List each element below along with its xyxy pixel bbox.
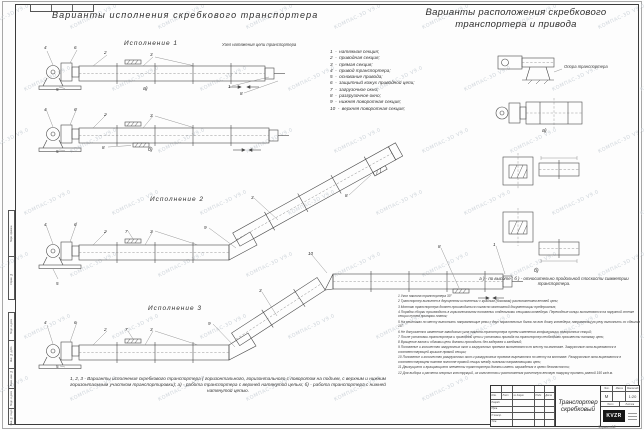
callout-5-exec3: 5: [56, 364, 59, 369]
callout-2-exec1a: 2: [104, 50, 107, 55]
callout-2-exec1b: 2: [104, 112, 107, 117]
notes-block: 1 Угол наклона транспортера 30° 2 Трансп…: [398, 294, 641, 376]
callout-3-exec1a: 3: [150, 52, 153, 57]
execution-1a-drawing: [33, 50, 328, 100]
fine-print-line: [628, 419, 637, 420]
callout-4-exec1a: 4: [44, 45, 47, 50]
placement-a-label: а): [542, 128, 547, 134]
note-line: 3 Монтаж транспортера должен производить…: [398, 305, 641, 310]
callout-7-exec2: 7: [125, 229, 128, 234]
callout-6-exec2: 6: [74, 222, 77, 227]
tb-header-podp: Подп.: [535, 393, 545, 400]
note-line: 9 Положение и количество загрузочных око…: [398, 345, 641, 354]
callout-4-exec3: 4: [44, 320, 47, 325]
callout-3i-exec3: 3: [259, 288, 262, 293]
company-logo: KVZR: [603, 410, 625, 422]
note-line: 12 Для выбора и расчета опорных конструк…: [398, 371, 641, 376]
callout-8-exec3: 8: [438, 244, 441, 249]
tb-role-utv: Утв.: [491, 420, 513, 427]
frame-sidebox-lower: Подп. и дата Инв. № дубл. Взам. инв. № П…: [8, 312, 15, 425]
frame-label: Взам. инв. №: [10, 370, 13, 386]
legend-item: 10-верхняя поворотная секция;: [330, 106, 415, 112]
callout-10-exec3: 10: [308, 251, 313, 256]
tb-header-data: Дата: [545, 393, 555, 400]
note-line: 2 Транспортер выполнен в двухцепном испо…: [398, 299, 641, 304]
callout-1-exec1a: 1: [228, 84, 231, 89]
frame-label: Справ. №: [10, 273, 13, 285]
note-line: 4 Порядок сборки производить в горизонта…: [398, 310, 641, 319]
callout-3-exec1b: 3: [150, 113, 153, 118]
legend: 1-натяжная секция; 2-приводная секция; 3…: [330, 49, 415, 112]
callout-2-exec2: 2: [104, 229, 107, 234]
frame-sidebox-upper: Перв. примен. Справ. №: [8, 210, 15, 300]
fine-print-line: [628, 413, 637, 414]
callout-3-exec2: 3: [150, 229, 153, 234]
callout-8-exec2: 8: [345, 193, 348, 198]
drawing-sheet: КОМПАС-3D V9.0КОМПАС-3D V9.0КОМПАС-3D V9…: [0, 0, 644, 430]
placement-b-drawing: [495, 152, 590, 270]
note-line: 6 Не допускается изменение заводского уг…: [398, 330, 641, 335]
support-view-drawing: [492, 50, 564, 88]
callout-9-exec3: 9: [208, 321, 211, 326]
fine-print-line: [628, 416, 637, 417]
callout-6-exec1b: 6: [74, 107, 77, 112]
tb-litera-value: М: [601, 392, 613, 402]
frame-label: Инв. № подл.: [10, 409, 13, 425]
tb-scale-value: 1:20: [626, 392, 639, 402]
tension-unit-note: Узел натяжения цепи транспортера: [222, 42, 296, 47]
frame-label: Инв. № дубл.: [10, 346, 13, 362]
callout-4-exec1b: 4: [44, 107, 47, 112]
note-line: 8 Вращение валов и обжимы цепи должны пр…: [398, 340, 641, 345]
tb-sheets-header: Листов: [620, 402, 639, 407]
callout-9-exec2: 9: [204, 225, 207, 230]
callout-6-exec3: 6: [74, 320, 77, 325]
format-label: Формат А3: [598, 425, 615, 429]
tb-sheet-header: Лист: [601, 402, 620, 407]
note-line: 11 Движущиеся и вращающиеся элементы тра…: [398, 365, 641, 370]
figure-caption: 1, 2, 3 - Варианты исполнения скребковог…: [62, 376, 394, 394]
placement-a-drawing: [490, 92, 590, 134]
callout-7-exec3: 7: [125, 327, 128, 332]
watermark-text: КОМПАС-3D V9.0: [639, 65, 644, 93]
tb-header-docnum: № докум.: [513, 393, 535, 400]
callout-8-exec1a: 8: [240, 91, 243, 96]
page-title-left: Варианты исполнения скребкового транспор…: [52, 10, 318, 20]
callout-2-exec3: 2: [104, 327, 107, 332]
note-line: 5 На рештаках по месту выполнить направл…: [398, 320, 641, 329]
note-line: 1 Угол наклона транспортера 30°: [398, 294, 641, 299]
callout-6-exec1a: 6: [74, 45, 77, 50]
callout-4-exec2: 4: [44, 222, 47, 227]
page-title-right: Варианты расположения скребкового трансп…: [400, 7, 632, 30]
note-line: 7 После установки транспортера и приводн…: [398, 335, 641, 340]
frame-label: Подп. и дата: [10, 319, 13, 334]
placement-b-label: б): [534, 268, 539, 274]
watermark-text: КОМПАС-3D V9.0: [639, 189, 644, 217]
tb-header-izm: Изм.: [491, 393, 502, 400]
callout-3i-exec2: 3: [251, 195, 254, 200]
callout-3-exec3: 3: [150, 327, 153, 332]
frame-label: Перв. примен.: [10, 225, 13, 242]
variant-a-label-exec1: а): [143, 86, 148, 92]
placement-ab-note: а ) - по высоте ; б ) - относительно про…: [478, 276, 630, 287]
note-line: 10 Положение и количество разгрузочных о…: [398, 355, 641, 364]
title-block: Изм. Лист № докум. Подп. Дата Разраб. Пр…: [490, 385, 640, 427]
tb-header-list: Лист: [502, 393, 513, 400]
execution-1-label: Исполнение 1: [124, 40, 178, 47]
document-title: Транспортер скребковый: [555, 386, 601, 426]
support-note: Опора транспортера: [564, 64, 608, 69]
frame-label: Подп. и дата: [10, 391, 13, 406]
callout-5-exec1a: 5: [56, 87, 59, 92]
